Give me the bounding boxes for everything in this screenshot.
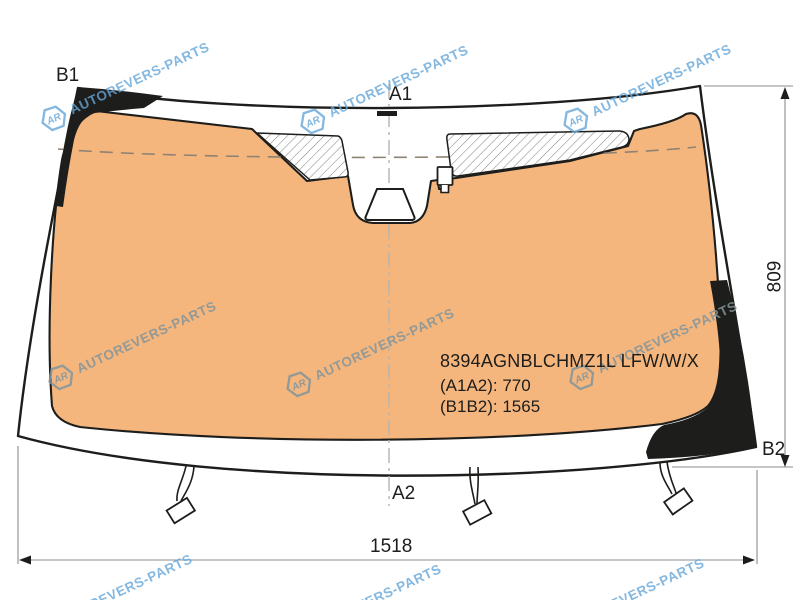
connector-left-wire (177, 466, 194, 501)
width-dimension-label: 1518 (370, 537, 412, 556)
connector-left-plug (167, 498, 195, 523)
rain-sensor-bracket (438, 167, 453, 185)
a1-tick-mark (377, 111, 397, 116)
arrow-left-icon (19, 556, 31, 565)
connector-center-plug (463, 500, 491, 525)
arrow-up-icon (781, 87, 790, 99)
connector-right-plug (664, 488, 692, 514)
windshield-diagram-canvas: AR AUTOREVERS-PARTS AR AUTOREVERS-PARTS … (0, 0, 800, 600)
height-dimension-label: 809 (766, 255, 785, 299)
ref-point-b1-label: B1 (56, 66, 79, 85)
arrow-right-icon (743, 556, 755, 565)
b1b2-distance: (B1B2): 1565 (440, 396, 699, 417)
ref-point-a2-label: A2 (392, 484, 415, 503)
part-info: 8394AGNBLCHMZ1L LFW/W/X (A1A2): 770 (B1B… (440, 351, 699, 417)
ref-point-b2-label: B2 (762, 440, 785, 459)
rain-sensor-tab (441, 185, 449, 193)
ref-point-a1-label: A1 (389, 85, 412, 104)
part-number: 8394AGNBLCHMZ1L LFW/W/X (440, 351, 699, 372)
a1a2-distance: (A1A2): 770 (440, 375, 699, 396)
